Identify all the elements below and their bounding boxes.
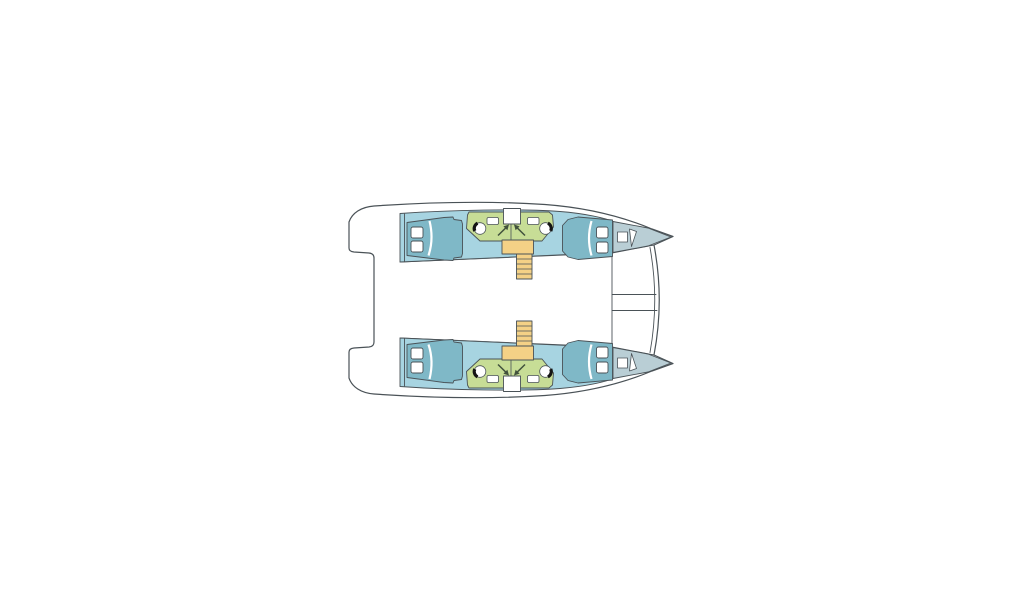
stair-flight	[517, 254, 533, 279]
catamaran-plan-canvas	[0, 0, 1024, 600]
bow-deck-hatch	[618, 232, 628, 242]
forward-berth-pillow	[597, 227, 609, 238]
sink	[487, 218, 499, 225]
aft-berth	[407, 217, 463, 261]
aft-berth-pillow	[411, 241, 423, 252]
aft-berth-pillow	[411, 227, 423, 238]
catamaran-floor-plan	[0, 0, 1024, 600]
forward-berth-pillow	[597, 242, 609, 253]
companionway-hatch	[504, 209, 521, 225]
sink	[528, 218, 540, 225]
stair-landing	[502, 240, 534, 254]
